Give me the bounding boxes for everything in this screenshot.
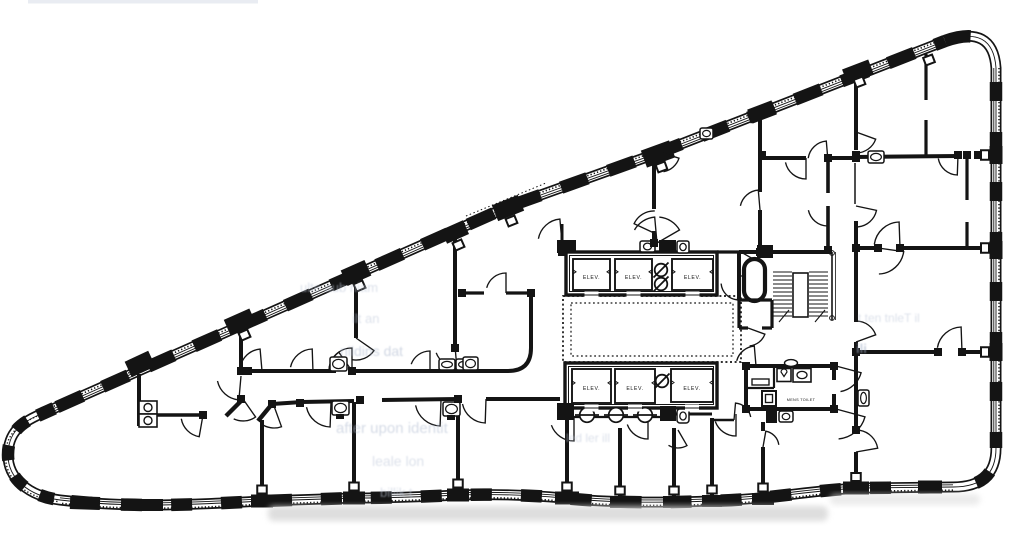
svg-text:MENS TOILET: MENS TOILET bbox=[787, 398, 816, 402]
svg-text:nildins dat: nildins dat bbox=[340, 343, 403, 359]
svg-text:t ten tnleT il: t ten tnleT il bbox=[858, 311, 920, 325]
svg-text:ELEV.: ELEV. bbox=[583, 386, 600, 392]
svg-text:ELEV.: ELEV. bbox=[626, 386, 643, 392]
svg-text:ili: ili bbox=[856, 341, 867, 356]
svg-text:ELEV.: ELEV. bbox=[583, 275, 600, 281]
svg-text:led ler ill: led ler ill bbox=[566, 431, 610, 445]
svg-text:ELEV.: ELEV. bbox=[683, 386, 700, 392]
svg-text:ELEV.: ELEV. bbox=[684, 275, 701, 281]
svg-text:leale lon: leale lon bbox=[372, 453, 424, 469]
svg-text:ilt an: ilt an bbox=[352, 311, 379, 326]
svg-text:after upon identit: after upon identit bbox=[336, 420, 449, 437]
svg-text:billik t: billik t bbox=[380, 485, 413, 500]
svg-text:ulte aub niam: ulte aub niam bbox=[300, 280, 378, 295]
svg-text:ELEV.: ELEV. bbox=[625, 275, 642, 281]
